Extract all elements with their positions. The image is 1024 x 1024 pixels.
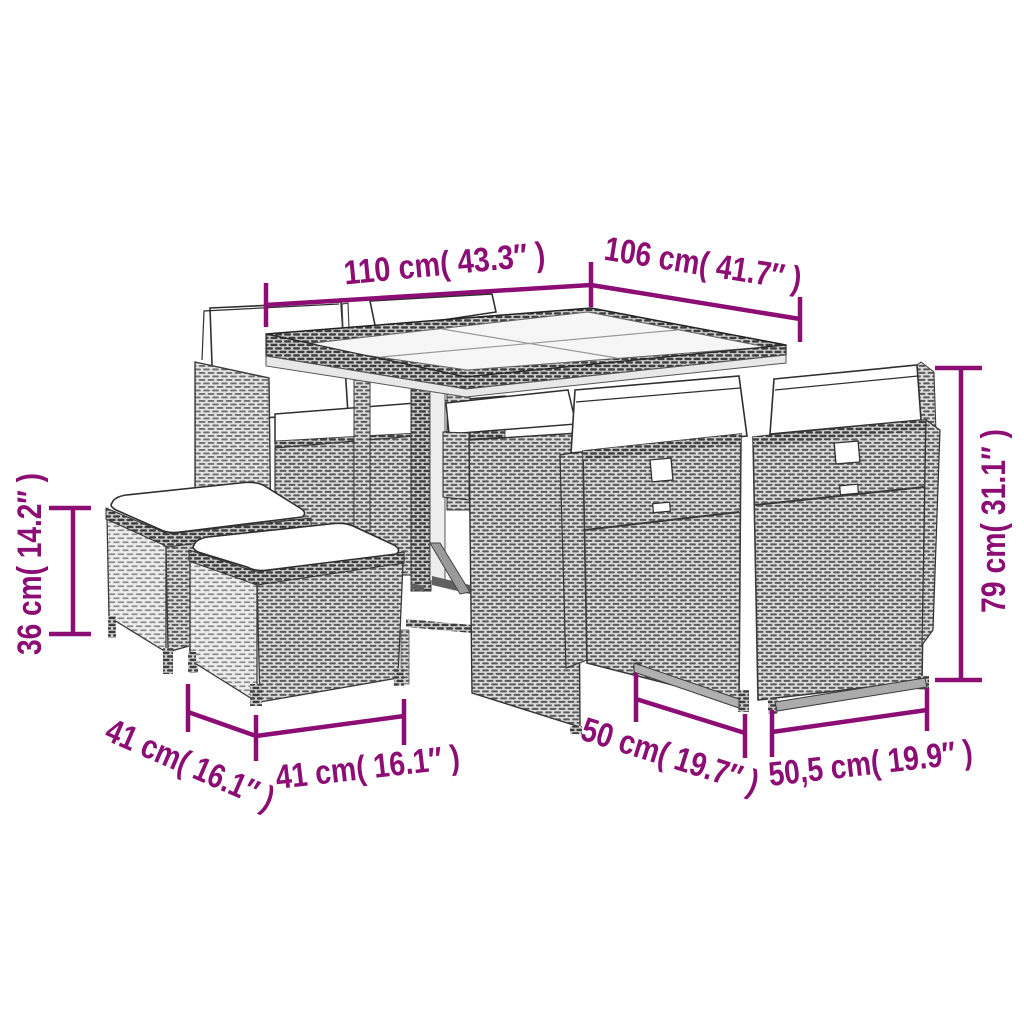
svg-text:110 cm( 43.3″ ): 110 cm( 43.3″ ) — [342, 235, 547, 292]
svg-text:79 cm( 31.1″ ): 79 cm( 31.1″ ) — [975, 429, 1013, 613]
svg-text:106 cm( 41.7″ ): 106 cm( 41.7″ ) — [602, 230, 804, 299]
svg-text:50 cm( 19.7″ ): 50 cm( 19.7″ ) — [577, 710, 764, 802]
svg-text:36 cm( 14.2″ ): 36 cm( 14.2″ ) — [11, 473, 49, 655]
svg-text:50,5 cm( 19.9″ ): 50,5 cm( 19.9″ ) — [767, 733, 975, 794]
svg-text:41 cm( 16.1″ ): 41 cm( 16.1″ ) — [274, 738, 462, 797]
